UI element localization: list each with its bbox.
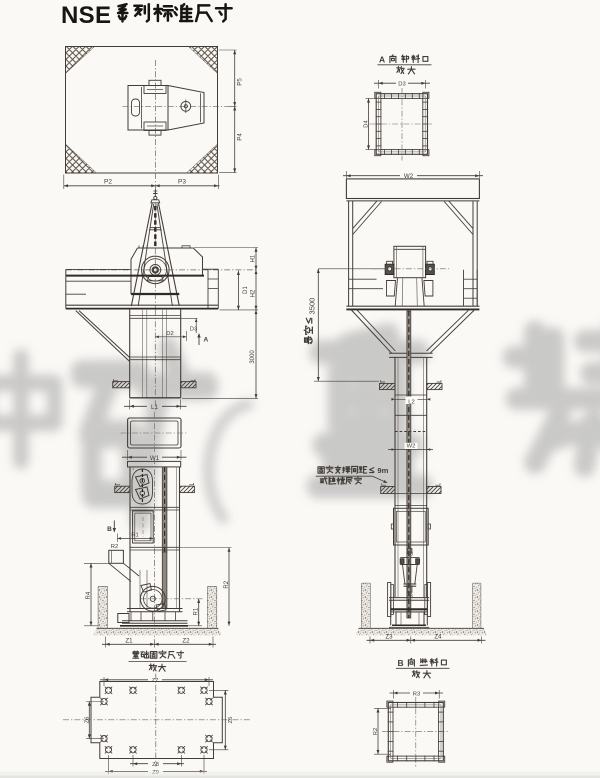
- svg-text:D3: D3: [190, 327, 197, 333]
- svg-text:P4: P4: [236, 133, 243, 141]
- svg-text:3500: 3500: [308, 298, 317, 315]
- svg-text:D2: D2: [166, 331, 173, 337]
- svg-text:Z5: Z5: [228, 717, 234, 724]
- svg-text:3000: 3000: [250, 350, 256, 364]
- svg-text:R2: R2: [373, 728, 379, 735]
- svg-text:R1: R1: [131, 532, 138, 538]
- svg-text:W2: W2: [407, 444, 416, 450]
- svg-text:Z7: Z7: [152, 678, 159, 684]
- svg-text:R4: R4: [86, 591, 92, 599]
- svg-text:P3: P3: [178, 178, 186, 185]
- svg-text:H1: H1: [251, 254, 257, 262]
- svg-text:A: A: [204, 337, 209, 344]
- svg-text:R1: R1: [193, 607, 199, 615]
- svg-text:NSE: NSE: [61, 2, 111, 29]
- svg-text:B3: B3: [406, 593, 413, 599]
- svg-text:9m: 9m: [377, 466, 388, 475]
- svg-text:L2: L2: [408, 399, 414, 405]
- svg-text:B: B: [107, 526, 112, 533]
- svg-text:B: B: [398, 658, 404, 668]
- svg-text:D4: D4: [364, 120, 370, 128]
- svg-text:D3: D3: [398, 81, 405, 87]
- svg-text:R2: R2: [111, 544, 118, 550]
- svg-text:Z6: Z6: [84, 717, 90, 724]
- svg-text:P2: P2: [104, 179, 112, 186]
- svg-text:A: A: [379, 55, 385, 65]
- svg-text:L1: L1: [151, 404, 158, 411]
- svg-text:D1: D1: [243, 286, 249, 294]
- svg-text:R3: R3: [413, 691, 420, 697]
- svg-text:Z2: Z2: [182, 637, 190, 644]
- svg-text:Z8: Z8: [152, 762, 159, 768]
- svg-text:Z3: Z3: [385, 633, 393, 640]
- svg-text:R2: R2: [224, 580, 230, 588]
- svg-text:H2: H2: [251, 289, 257, 297]
- svg-text:P5: P5: [236, 78, 243, 86]
- svg-text:Z1: Z1: [125, 637, 133, 644]
- svg-text:Z4: Z4: [434, 633, 442, 640]
